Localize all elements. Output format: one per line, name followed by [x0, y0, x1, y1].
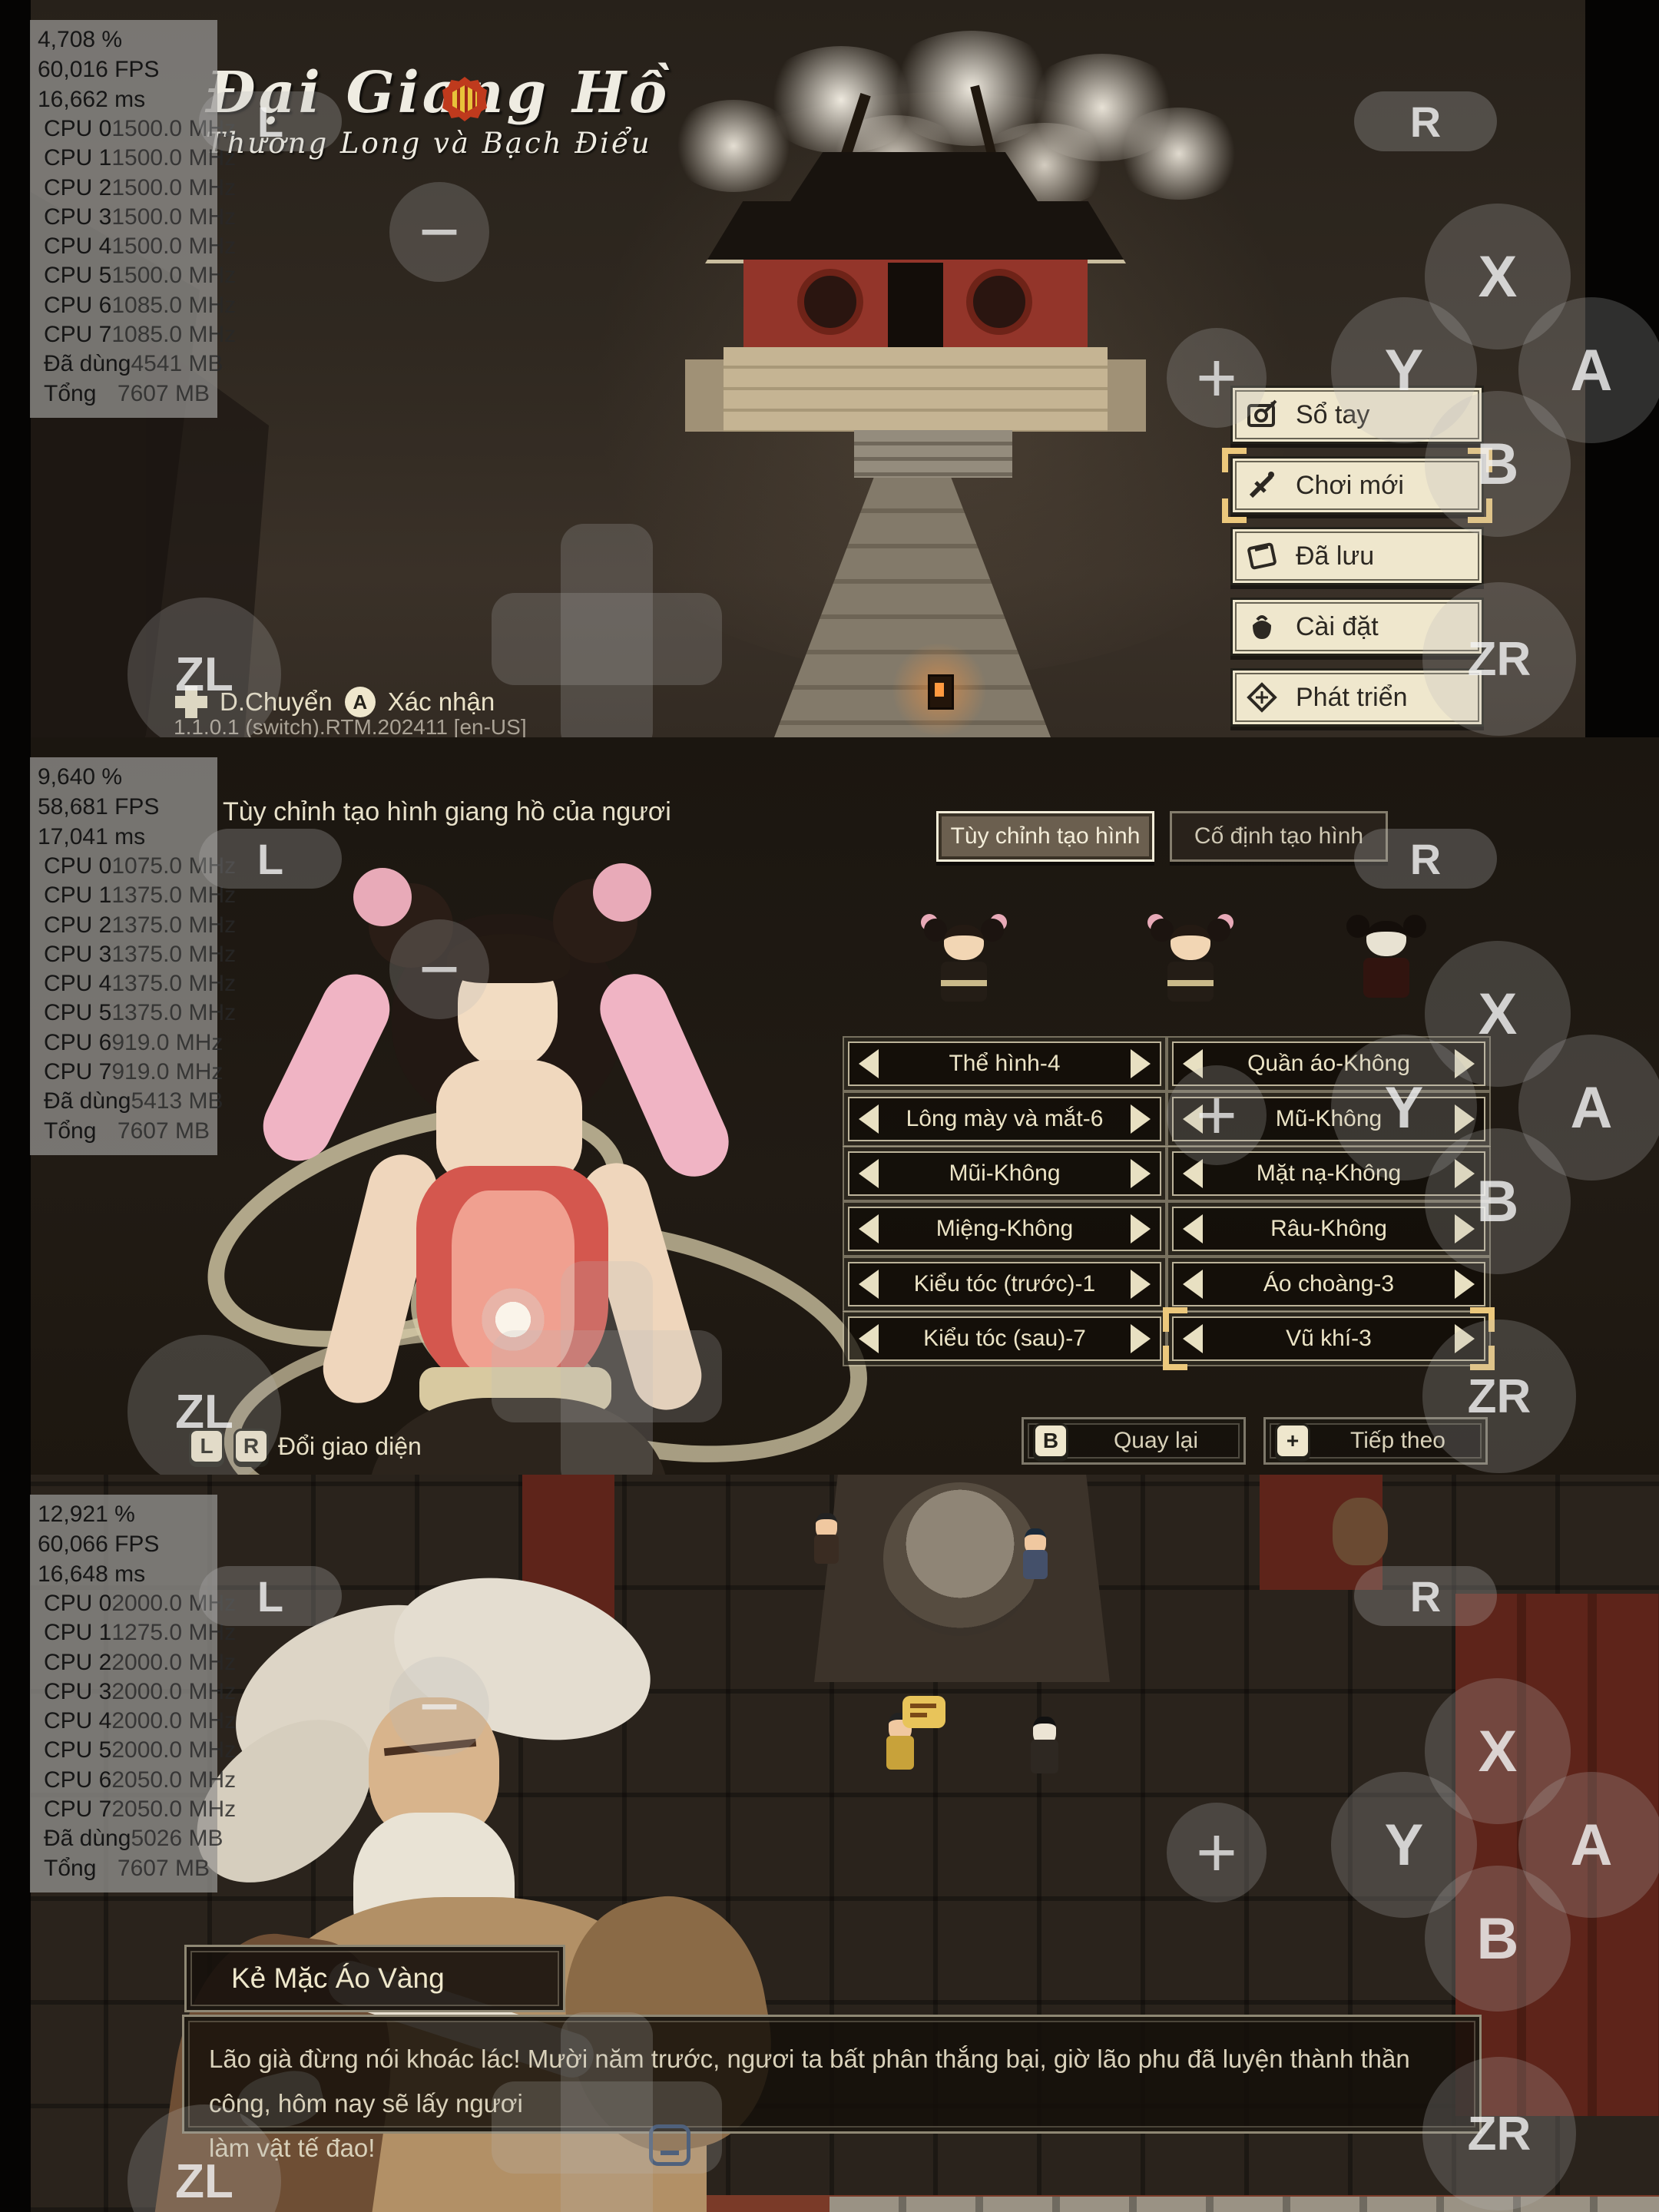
dpad-control[interactable] — [492, 2012, 722, 2212]
dpad-control[interactable] — [492, 1261, 722, 1475]
prev-arrow-icon[interactable] — [859, 1159, 879, 1188]
r-shoulder-button[interactable]: R — [1354, 91, 1497, 151]
sprite-preview-3[interactable] — [1340, 910, 1432, 1010]
minus-button[interactable]: − — [389, 182, 489, 282]
round-window — [797, 269, 863, 335]
b-key-icon: B — [1033, 1423, 1068, 1459]
selection-corner — [1222, 448, 1247, 472]
panel-title-screen: Đại Giang Hồ Thương Long và Bạch Điểu 4,… — [0, 0, 1659, 737]
l-shoulder-button[interactable]: L — [199, 91, 342, 151]
frametime: 16,648 ms — [38, 1559, 210, 1589]
cpu-usage-percent: 12,921 % — [38, 1499, 210, 1529]
perf-row: CPU 52000.0 MHz — [38, 1736, 210, 1765]
next-arrow-icon[interactable] — [1131, 1270, 1151, 1299]
minus-button[interactable]: − — [389, 1657, 489, 1757]
l-shoulder-button[interactable]: L — [199, 829, 342, 889]
performance-overlay: 4,708 % 60,016 FPS 16,662 ms CPU 01500.0… — [30, 20, 217, 418]
fps-counter: 60,016 FPS — [38, 55, 210, 84]
perf-row: CPU 11275.0 MHz — [38, 1618, 210, 1647]
l-shoulder-button[interactable]: L — [199, 1566, 342, 1626]
perf-row: Tổng7607 MB — [38, 379, 210, 409]
minus-button[interactable]: − — [389, 919, 489, 1019]
next-arrow-icon[interactable] — [1131, 1214, 1151, 1243]
next-arrow-icon[interactable] — [1131, 1049, 1151, 1078]
pot — [1333, 1498, 1388, 1565]
speaker-name: Kẻ Mặc Áo Vàng — [231, 1962, 445, 1995]
r-shoulder-button[interactable]: R — [1354, 829, 1497, 889]
prev-arrow-icon[interactable] — [1183, 1159, 1203, 1188]
perf-row: Tổng7607 MB — [38, 1854, 210, 1883]
dev-icon — [1245, 680, 1279, 714]
cpu-usage-percent: 9,640 % — [38, 762, 210, 792]
perf-row: Tổng7607 MB — [38, 1117, 210, 1146]
plus-button[interactable]: + — [1167, 328, 1267, 428]
temple-steps — [854, 430, 1012, 478]
menu-item-da-luu[interactable]: Đã lưu — [1230, 527, 1484, 585]
emulator-screenshot-collage: { "controller": {"l":"L","r":"R","zl":"Z… — [0, 0, 1659, 2212]
perf-row: CPU 11500.0 MHz — [38, 144, 210, 173]
fps-counter: 60,066 FPS — [38, 1529, 210, 1559]
zr-button[interactable]: ZR — [1422, 2057, 1576, 2210]
perf-row: CPU 32000.0 MHz — [38, 1677, 210, 1707]
dpad-control[interactable] — [492, 524, 722, 737]
perf-row: CPU 22000.0 MHz — [38, 1648, 210, 1677]
letterbox-left — [0, 0, 31, 737]
menu-item-label: Cài đặt — [1296, 612, 1379, 642]
selection-corner — [1163, 1307, 1187, 1332]
perf-row: CPU 21500.0 MHz — [38, 174, 210, 203]
lantern — [928, 674, 954, 710]
menu-item-label: Đã lưu — [1296, 541, 1374, 571]
book-icon — [1245, 539, 1279, 573]
cpu-usage-percent: 4,708 % — [38, 25, 210, 55]
npc-sprite — [1022, 1528, 1049, 1582]
perf-row: CPU 02000.0 MHz — [38, 1589, 210, 1618]
selector-kieu-toc-truoc[interactable]: Kiểu tóc (trước)-1 — [848, 1262, 1161, 1306]
selector-the-hinh[interactable]: Thể hình-4 — [848, 1041, 1161, 1086]
temple-stone-base — [724, 347, 1108, 432]
bun-ribbon — [353, 868, 412, 926]
panel-dialogue-scene: 12,921 % 60,066 FPS 16,648 ms CPU 02000.… — [0, 1475, 1659, 2212]
npc-sprite-dark — [1029, 1717, 1060, 1777]
prev-arrow-icon[interactable] — [859, 1104, 879, 1134]
next-arrow-icon[interactable] — [1131, 1159, 1151, 1188]
sprite-preview-2[interactable] — [1144, 914, 1237, 1014]
creator-tabs: Tùy chỉnh tạo hình Cố định tạo hình — [936, 811, 1388, 862]
plus-button[interactable]: + — [1167, 1803, 1267, 1902]
statue-furnace — [883, 1482, 1037, 1636]
plus-key-icon: + — [1275, 1423, 1310, 1459]
r-shoulder-button[interactable]: R — [1354, 1566, 1497, 1626]
frametime: 16,662 ms — [38, 84, 210, 114]
sprite-preview-1[interactable] — [918, 914, 1010, 1014]
perf-row: CPU 71085.0 MHz — [38, 320, 210, 349]
roof-main — [705, 201, 1126, 263]
prev-arrow-icon[interactable] — [1183, 1270, 1203, 1299]
swap-ui-label: Đổi giao diện — [278, 1432, 422, 1461]
selector-ao-choang[interactable]: Áo choàng-3 — [1172, 1262, 1485, 1306]
perf-row: Đã dùng4541 MB — [38, 349, 210, 379]
selector-mui[interactable]: Mũi-Không — [848, 1151, 1161, 1196]
perf-row: Đã dùng5026 MB — [38, 1824, 210, 1853]
tab-tuy-chinh-tao-hinh[interactable]: Tùy chỉnh tạo hình — [936, 811, 1154, 862]
panel-character-creator: 9,640 % 58,681 FPS 17,041 ms CPU 01075.0… — [0, 737, 1659, 1475]
prev-arrow-icon[interactable] — [1183, 1214, 1203, 1243]
perf-row: CPU 11375.0 MHz — [38, 881, 210, 910]
menu-item-label: Chơi mới — [1296, 471, 1404, 501]
zr-button[interactable]: ZR — [1422, 1320, 1576, 1473]
performance-overlay: 9,640 % 58,681 FPS 17,041 ms CPU 01075.0… — [30, 757, 217, 1155]
perf-row: CPU 51500.0 MHz — [38, 261, 210, 290]
frametime: 17,041 ms — [38, 822, 210, 852]
letterbox-left — [0, 737, 31, 1475]
speech-bubble-icon — [902, 1696, 945, 1728]
perf-row: CPU 7919.0 MHz — [38, 1058, 210, 1087]
selection-corner — [1163, 1346, 1187, 1370]
perf-row: CPU 61085.0 MHz — [38, 291, 210, 320]
selector-kieu-toc-sau[interactable]: Kiểu tóc (sau)-7 — [848, 1316, 1161, 1361]
perf-row: CPU 51375.0 MHz — [38, 998, 210, 1028]
selector-long-may-va-mat[interactable]: Lông mày và mắt-6 — [848, 1097, 1161, 1141]
prev-arrow-icon[interactable] — [859, 1049, 879, 1078]
roof-ridge — [787, 152, 1041, 206]
perf-row: CPU 21375.0 MHz — [38, 911, 210, 940]
b-button[interactable]: B — [1425, 1128, 1571, 1274]
perf-row: CPU 01500.0 MHz — [38, 114, 210, 144]
bun-ribbon — [593, 863, 651, 922]
selector-mieng[interactable]: Miệng-Không — [848, 1207, 1161, 1251]
page-title: Tùy chỉnh tạo hình giang hồ của ngươi — [223, 797, 671, 827]
perf-row: CPU 41375.0 MHz — [38, 969, 210, 998]
perf-row: Đã dùng5413 MB — [38, 1087, 210, 1116]
back-button[interactable]: B Quay lại — [1022, 1417, 1246, 1465]
next-arrow-icon[interactable] — [1455, 1270, 1475, 1299]
perf-row: CPU 6919.0 MHz — [38, 1028, 210, 1058]
perf-row: CPU 72050.0 MHz — [38, 1795, 210, 1824]
plus-button[interactable]: + — [1167, 1065, 1267, 1165]
menu-item-label: Phát triển — [1296, 683, 1408, 713]
b-button[interactable]: B — [1425, 391, 1571, 537]
dialogue-box[interactable]: Lão già đừng nói khoác lác! Mười năm trư… — [182, 2015, 1482, 2134]
prev-arrow-icon[interactable] — [859, 1324, 879, 1353]
performance-overlay: 12,921 % 60,066 FPS 16,648 ms CPU 02000.… — [30, 1495, 217, 1892]
selection-corner — [1222, 498, 1247, 523]
dialogue-line: làm vật tế đao! — [209, 2126, 1456, 2171]
dialogue-line: Lão già đừng nói khoác lác! Mười năm trư… — [209, 2037, 1456, 2126]
next-arrow-icon[interactable] — [1131, 1104, 1151, 1134]
b-button[interactable]: B — [1425, 1866, 1571, 2012]
zr-button[interactable]: ZR — [1422, 582, 1576, 736]
next-arrow-icon[interactable] — [1131, 1324, 1151, 1353]
round-window — [966, 269, 1032, 335]
perf-row: CPU 01075.0 MHz — [38, 852, 210, 881]
speaker-name-box: Kẻ Mặc Áo Vàng — [184, 1945, 565, 2012]
a-button-icon: A — [345, 687, 376, 717]
npc-sprite — [813, 1513, 840, 1567]
prev-arrow-icon[interactable] — [859, 1270, 879, 1299]
blossom — [1114, 108, 1244, 200]
temple-door — [888, 263, 943, 350]
fps-counter: 58,681 FPS — [38, 792, 210, 822]
confirm-hint-label: Xác nhận — [388, 687, 495, 717]
letterbox-left — [0, 1475, 31, 2212]
prev-arrow-icon[interactable] — [859, 1214, 879, 1243]
perf-row: CPU 42000.0 MHz — [38, 1707, 210, 1736]
perf-row: CPU 41500.0 MHz — [38, 232, 210, 261]
perf-row: CPU 31375.0 MHz — [38, 940, 210, 969]
bag-icon — [1245, 610, 1279, 644]
sword-icon — [1245, 469, 1279, 502]
perf-row: CPU 62050.0 MHz — [38, 1766, 210, 1795]
perf-row: CPU 31500.0 MHz — [38, 203, 210, 232]
